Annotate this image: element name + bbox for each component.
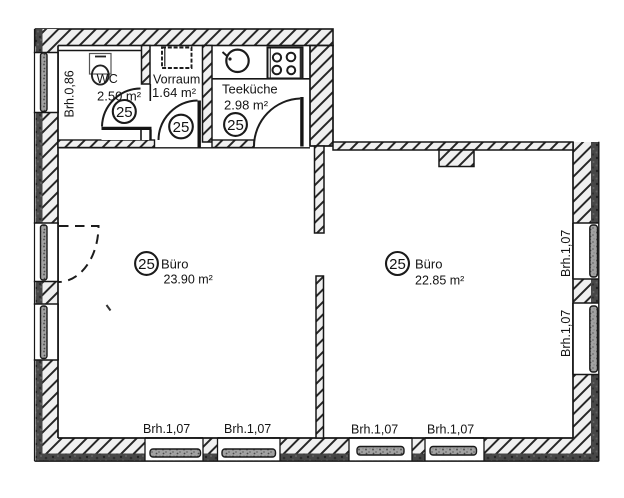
svg-text:Büro: Büro [415,257,442,272]
svg-text:Brh.1,07: Brh.1,07 [559,230,573,277]
svg-text:Brh.1,07: Brh.1,07 [143,422,190,436]
svg-text:25: 25 [227,117,244,134]
svg-text:22.85 m²: 22.85 m² [415,274,464,288]
svg-text:WC: WC [97,72,119,86]
svg-text:Brh.1,07: Brh.1,07 [351,423,398,437]
svg-text:Brh.1,07: Brh.1,07 [427,423,474,437]
svg-text:Brh.1,07: Brh.1,07 [559,310,573,357]
svg-text:25: 25 [116,104,133,121]
svg-text:23.90 m²: 23.90 m² [164,273,213,287]
svg-text:1.64 m²: 1.64 m² [152,85,197,100]
svg-text:2.98 m²: 2.98 m² [224,98,269,113]
svg-text:25: 25 [138,256,155,273]
svg-text:Brh.1,07: Brh.1,07 [224,422,271,436]
svg-text:25: 25 [389,256,406,273]
svg-text:Büro: Büro [161,257,188,272]
svg-text:Brh.0,86: Brh.0,86 [63,70,77,117]
svg-text:2.50 m²: 2.50 m² [97,89,142,104]
svg-text:Teeküche: Teeküche [222,82,278,97]
svg-text:25: 25 [173,119,190,136]
